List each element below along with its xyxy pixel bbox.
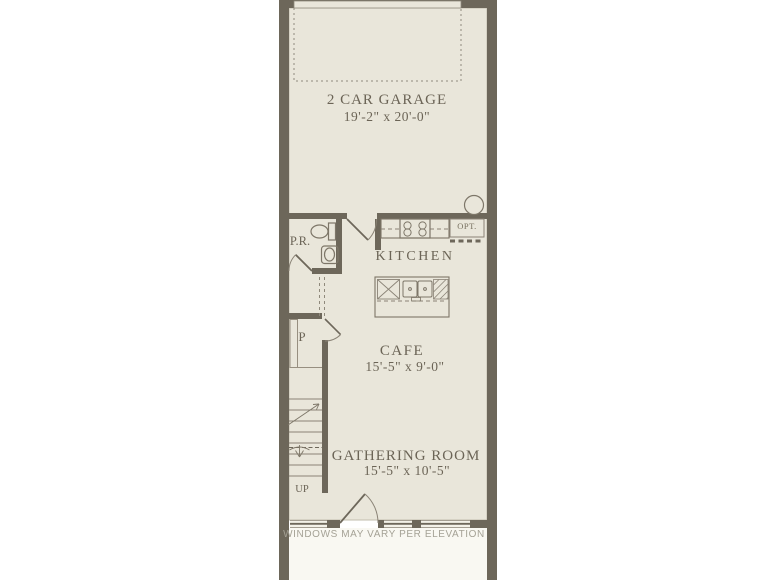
garage-dimensions: 19'-2" x 20'-0" [287,110,487,125]
floor-plan-drawing [0,0,773,580]
floor-plan: 2 CAR GARAGE 19'-2" x 20'-0" P.R. KITCHE… [0,0,773,580]
pantry-label: P [292,330,312,344]
pantry-top-wall [289,313,322,319]
stairs-up-label: UP [289,484,315,496]
window-icon [384,520,412,528]
water-heater-icon [465,196,484,215]
bottom-wall-segment [470,520,487,528]
cafe-dimensions: 15'-5" x 9'-0" [322,360,488,375]
powder-room-label: P.R. [282,235,318,249]
kitchen-island [375,277,449,317]
garage-separator-wall-left [289,213,347,219]
windows-note: WINDOWS MAY VARY PER ELEVATION [281,529,487,540]
window-icon [421,520,470,528]
bottom-wall-segment [327,520,340,528]
kitchen-label: KITCHEN [335,249,495,264]
cafe-label: CAFE [322,343,482,360]
bottom-wall-segment [412,520,421,528]
left-exterior-wall [279,0,289,580]
right-exterior-wall [487,0,497,580]
kitchen-counter [381,219,449,238]
garage-label: 2 CAR GARAGE [287,92,487,109]
powder-room-bottom-wall [312,268,342,274]
bottom-wall-segment [378,520,384,528]
window-icon [290,520,327,528]
optional-label: OPT. [449,222,485,231]
gathering-room-dimensions: 15'-5" x 10'-5" [306,464,508,479]
